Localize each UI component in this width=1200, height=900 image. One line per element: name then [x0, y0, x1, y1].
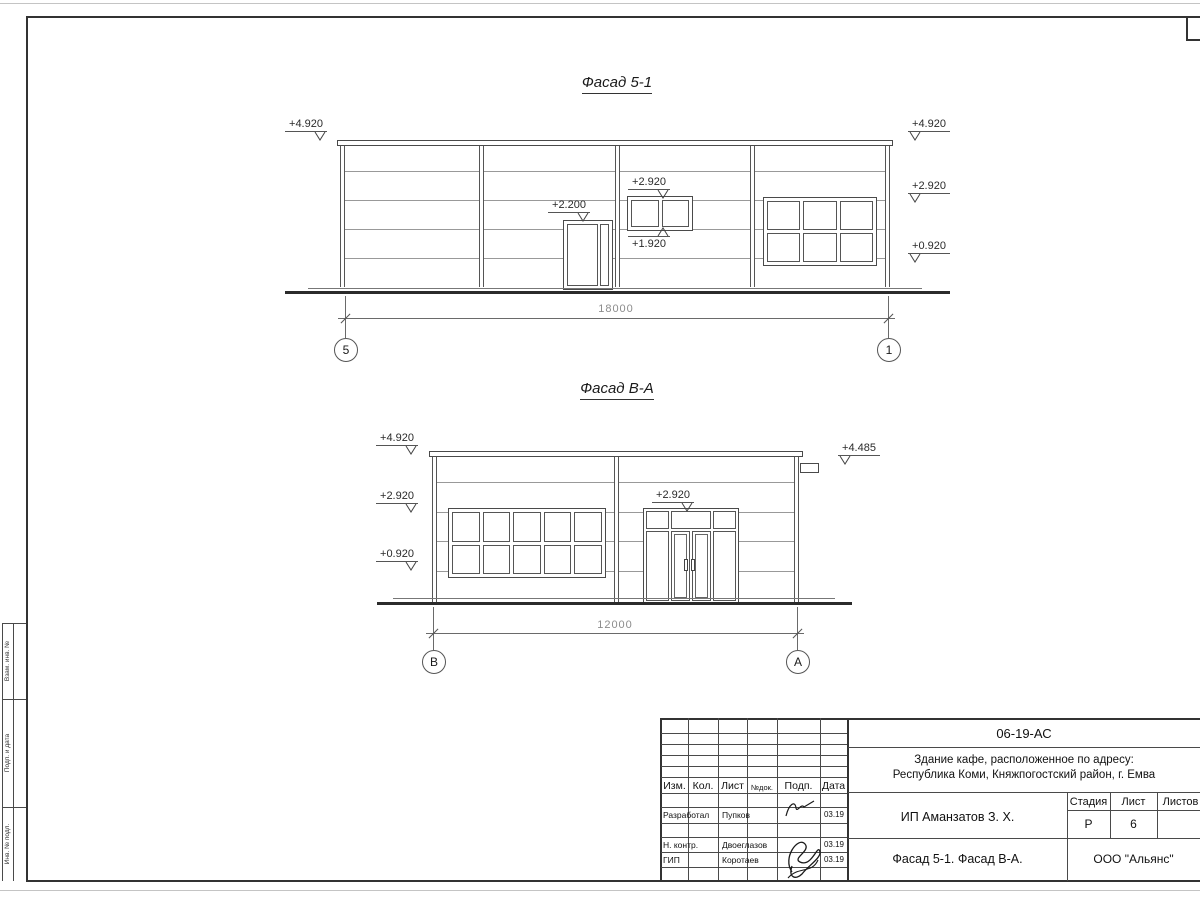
corner-post	[340, 146, 345, 287]
line	[848, 747, 1200, 748]
window-pane	[631, 200, 659, 227]
row-role: Н. контр.	[663, 840, 721, 850]
paper-edge-bottom	[0, 890, 1200, 891]
elevation-arrow-icon	[405, 446, 417, 455]
elevation-mark: +1.920	[628, 227, 670, 251]
elevation-mark: +4.485	[838, 442, 880, 456]
corner-post	[885, 146, 890, 287]
elevation-arrow-icon	[681, 503, 693, 512]
line	[2, 699, 26, 700]
window	[627, 196, 693, 231]
window-pane	[803, 233, 836, 262]
titleblock-company: ООО "Альянс"	[1067, 852, 1200, 866]
line	[661, 777, 847, 778]
line	[661, 733, 847, 734]
sidelight	[713, 531, 736, 601]
window-pane	[840, 233, 873, 262]
line	[13, 623, 14, 881]
window-pane	[513, 512, 541, 542]
window-pane	[483, 545, 511, 575]
line	[848, 792, 1200, 793]
door-panel	[695, 534, 708, 598]
window	[763, 197, 877, 266]
dimension-label: 12000	[575, 619, 655, 631]
line	[2, 807, 26, 808]
elevation-mark: +0.920	[908, 240, 950, 254]
row-name: Коротаев	[722, 855, 777, 865]
window-pane	[803, 201, 836, 230]
window-pane	[483, 512, 511, 542]
axis-circle-5: 5	[334, 338, 358, 362]
window-pane	[767, 201, 800, 230]
dimension-label: 18000	[576, 303, 656, 315]
row-date: 03.19	[821, 840, 847, 849]
facade-b-a-title: Фасад В-А	[517, 380, 717, 400]
window-pane	[452, 512, 480, 542]
extension-line	[797, 607, 798, 650]
sidelight	[646, 531, 669, 601]
stage-value: Р	[1067, 817, 1110, 831]
door-side-panel	[600, 224, 609, 286]
dimension-line	[338, 318, 895, 319]
door-handle	[684, 559, 688, 571]
row-name: Двоеглазов	[722, 840, 777, 850]
transom-pane	[671, 511, 711, 529]
elevation-mark: +4.920	[376, 432, 418, 446]
corner-post	[794, 457, 799, 603]
plinth-line	[308, 288, 922, 289]
elevation-mark: +2.920	[376, 490, 418, 504]
frame-left	[26, 16, 28, 882]
window-pane	[544, 512, 572, 542]
entrance-unit	[643, 508, 739, 604]
elevation-arrow-icon	[405, 504, 417, 513]
row-name: Пупков	[722, 810, 777, 820]
col-ndok: №док.	[747, 783, 777, 792]
elevation-arrow-icon	[405, 562, 417, 571]
axis-circle-1: 1	[877, 338, 901, 362]
line	[1067, 810, 1200, 811]
frame-bottom	[26, 880, 1200, 882]
stage-label: Стадия	[1067, 796, 1110, 808]
elevation-arrow-icon	[909, 132, 921, 141]
window-pane	[513, 545, 541, 575]
extension-line	[433, 607, 434, 650]
axis-circle-a: А	[786, 650, 810, 674]
elevation-mark: +4.920	[285, 118, 327, 132]
line	[661, 755, 847, 756]
elevation-arrow-icon	[909, 194, 921, 203]
window	[448, 508, 606, 578]
elevation-arrow-icon	[839, 456, 851, 465]
door-handle	[691, 559, 695, 571]
margin-stamp-label: Инв. № подл.	[4, 809, 11, 879]
window-pane	[574, 512, 602, 542]
paper-edge-top	[0, 3, 1200, 4]
line	[661, 766, 847, 767]
col-izm: Изм.	[661, 780, 688, 792]
wall-joint	[615, 146, 620, 287]
elevation-arrow-icon	[314, 132, 326, 141]
line	[661, 744, 847, 745]
col-kol: Кол.	[688, 780, 718, 792]
elevation-arrow-icon	[909, 254, 921, 263]
line	[2, 623, 3, 881]
window-pane	[662, 200, 690, 227]
elevation-arrow-icon	[577, 213, 589, 222]
sheets-label: Листов	[1157, 796, 1200, 808]
line	[2, 623, 26, 624]
col-data: Дата	[820, 780, 847, 792]
window-pane	[574, 545, 602, 575]
elevation-mark: +2.920	[652, 489, 694, 503]
ground-line	[377, 602, 852, 605]
window-pane	[452, 545, 480, 575]
line	[661, 793, 847, 794]
line	[660, 718, 1200, 720]
titleblock-project: Здание кафе, расположенное по адресу: Ре…	[852, 753, 1196, 783]
row-date: 03.19	[821, 810, 847, 819]
elevation-mark: +2.920	[908, 180, 950, 194]
corner-box-left	[1186, 16, 1188, 40]
corner-post	[432, 457, 437, 603]
sheet-label: Лист	[1110, 796, 1157, 808]
ground-line	[285, 291, 950, 294]
line	[848, 838, 1200, 839]
titleblock-client: ИП Аманзатов З. Х.	[848, 810, 1067, 824]
signature	[778, 796, 822, 882]
sheet-value: 6	[1110, 817, 1157, 831]
window-pane	[544, 545, 572, 575]
row-role: ГИП	[663, 855, 721, 865]
elevation-mark: +2.200	[548, 199, 590, 213]
margin-stamp-label: Взам. инв. №	[4, 625, 11, 697]
door-leaf	[567, 224, 598, 286]
wall-joint	[479, 146, 484, 287]
frame-top	[26, 16, 1200, 18]
line	[660, 718, 662, 881]
titleblock-doc-number: 06-19-АС	[848, 726, 1200, 741]
canopy	[800, 463, 819, 473]
elevation-mark: +2.920	[628, 176, 670, 190]
elevation-mark: +0.920	[376, 548, 418, 562]
titleblock-sheet-name: Фасад 5-1. Фасад В-А.	[848, 852, 1067, 866]
axis-circle-v: В	[422, 650, 446, 674]
entrance-door	[563, 220, 613, 290]
col-list: Лист	[718, 780, 747, 792]
corner-box-bottom	[1186, 39, 1200, 41]
row-role: Разработал	[663, 810, 721, 820]
window-pane	[840, 201, 873, 230]
transom-pane	[646, 511, 669, 529]
wall-joint	[750, 146, 755, 287]
drawing-sheet: Фасад 5-1 +4.	[0, 0, 1200, 900]
window-pane	[767, 233, 800, 262]
elevation-mark: +4.920	[908, 118, 950, 132]
elevation-arrow-icon	[657, 227, 669, 236]
transom-pane	[713, 511, 736, 529]
wall-joint	[614, 457, 619, 603]
dimension-line	[426, 633, 804, 634]
elevation-arrow-icon	[657, 190, 669, 199]
transom-row	[646, 511, 736, 529]
col-podp: Подп.	[777, 780, 820, 792]
titleblock-project-line2: Республика Коми, Княжпогостский район, г…	[852, 768, 1196, 783]
margin-stamp-label: Подп. и дата	[4, 701, 11, 805]
plinth-line	[393, 598, 835, 599]
titleblock-project-line1: Здание кафе, расположенное по адресу:	[852, 753, 1196, 768]
facade-5-1-title: Фасад 5-1	[517, 74, 717, 94]
row-date: 03.19	[821, 855, 847, 864]
